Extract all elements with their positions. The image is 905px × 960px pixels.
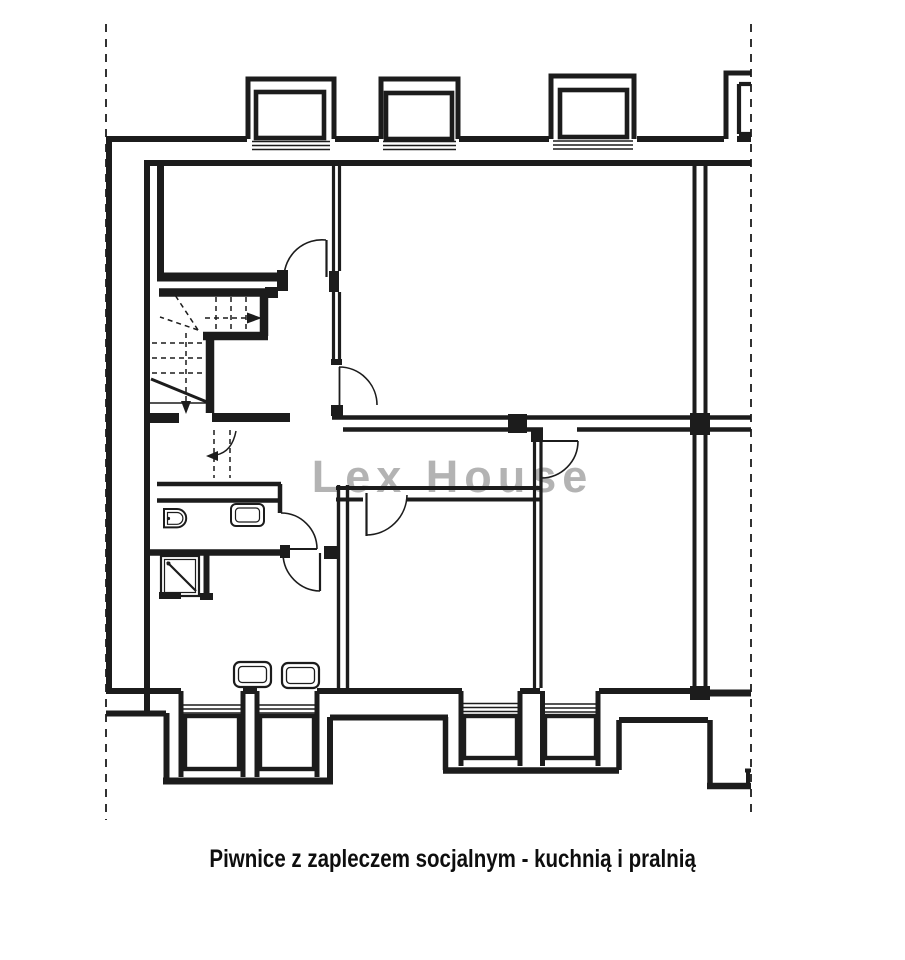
door-swing xyxy=(284,240,327,277)
window-frame-lines xyxy=(383,142,456,150)
drawing-caption: Piwnice z zapleczem socjalnym - kuchnią … xyxy=(0,845,905,874)
window-bay xyxy=(549,76,637,149)
window-glass-box xyxy=(545,716,596,758)
window-glass-box xyxy=(560,90,627,137)
window-bay xyxy=(257,691,317,777)
door-hinge-jamb xyxy=(324,546,337,559)
stair-break-line xyxy=(151,379,207,402)
door-swing xyxy=(366,493,407,536)
door-jamb xyxy=(280,545,290,558)
window-bay xyxy=(543,691,599,766)
walk-line-arrowhead xyxy=(206,451,218,461)
fixtures xyxy=(161,504,319,688)
door-swing xyxy=(541,441,578,478)
window-frame-lines xyxy=(553,141,633,149)
shower-drain-dot xyxy=(167,562,171,566)
door-arc xyxy=(281,513,317,549)
kitchen-appliance-symbol xyxy=(234,662,271,687)
washbasin-symbol xyxy=(164,509,186,527)
stair-enclosure-walls xyxy=(159,292,268,413)
wall-corner-fill xyxy=(690,686,710,700)
window-glass-box xyxy=(464,716,517,758)
door-swing xyxy=(281,513,317,549)
floor-plan-drawing xyxy=(0,0,905,960)
door-jamb xyxy=(277,270,288,291)
window-glass-box xyxy=(739,84,751,134)
door-swing xyxy=(283,553,320,591)
window-bay xyxy=(181,691,243,777)
door-swing xyxy=(339,367,377,405)
wall-pier xyxy=(508,414,527,433)
cistern-symbol xyxy=(231,504,264,526)
shower-tray-symbol xyxy=(161,556,199,596)
window-frame-lines xyxy=(463,704,518,712)
walk-line-curve xyxy=(216,431,236,455)
window-glass-box xyxy=(260,716,314,769)
window-frame-lines xyxy=(545,704,596,712)
window-frame-lines xyxy=(259,705,315,713)
door-arc xyxy=(366,495,407,535)
kitchen-appliance-symbol xyxy=(282,663,319,688)
door-jamb xyxy=(329,271,339,292)
window-frame-lines xyxy=(252,142,330,150)
window-frame-lines xyxy=(183,705,241,713)
window-bay-partial-right xyxy=(724,73,752,139)
window-glass-box xyxy=(256,92,324,138)
door-arc xyxy=(339,367,377,405)
window-bay xyxy=(379,79,461,150)
window-bays-bottom xyxy=(181,691,598,777)
caption-text: Piwnice z zapleczem socjalnym - kuchnią … xyxy=(209,845,695,874)
door-arc xyxy=(283,554,320,591)
window-bay xyxy=(246,79,337,150)
window-glass-box xyxy=(185,716,239,769)
door-arc xyxy=(541,441,578,478)
window-bay xyxy=(461,691,520,766)
wall-end-cap xyxy=(200,593,213,600)
wall-end-cap xyxy=(331,359,342,365)
wall-end-cap xyxy=(531,430,543,442)
exterior-walls xyxy=(106,136,751,786)
scanned-floor-plan-page: Lex House xyxy=(0,0,905,960)
section-boundary-lines xyxy=(106,24,751,820)
door-jamb xyxy=(331,405,343,416)
middle-wall-segment xyxy=(150,413,179,423)
interior-walls xyxy=(150,163,751,691)
window-glass-box xyxy=(386,93,452,139)
door-arc xyxy=(284,240,326,277)
